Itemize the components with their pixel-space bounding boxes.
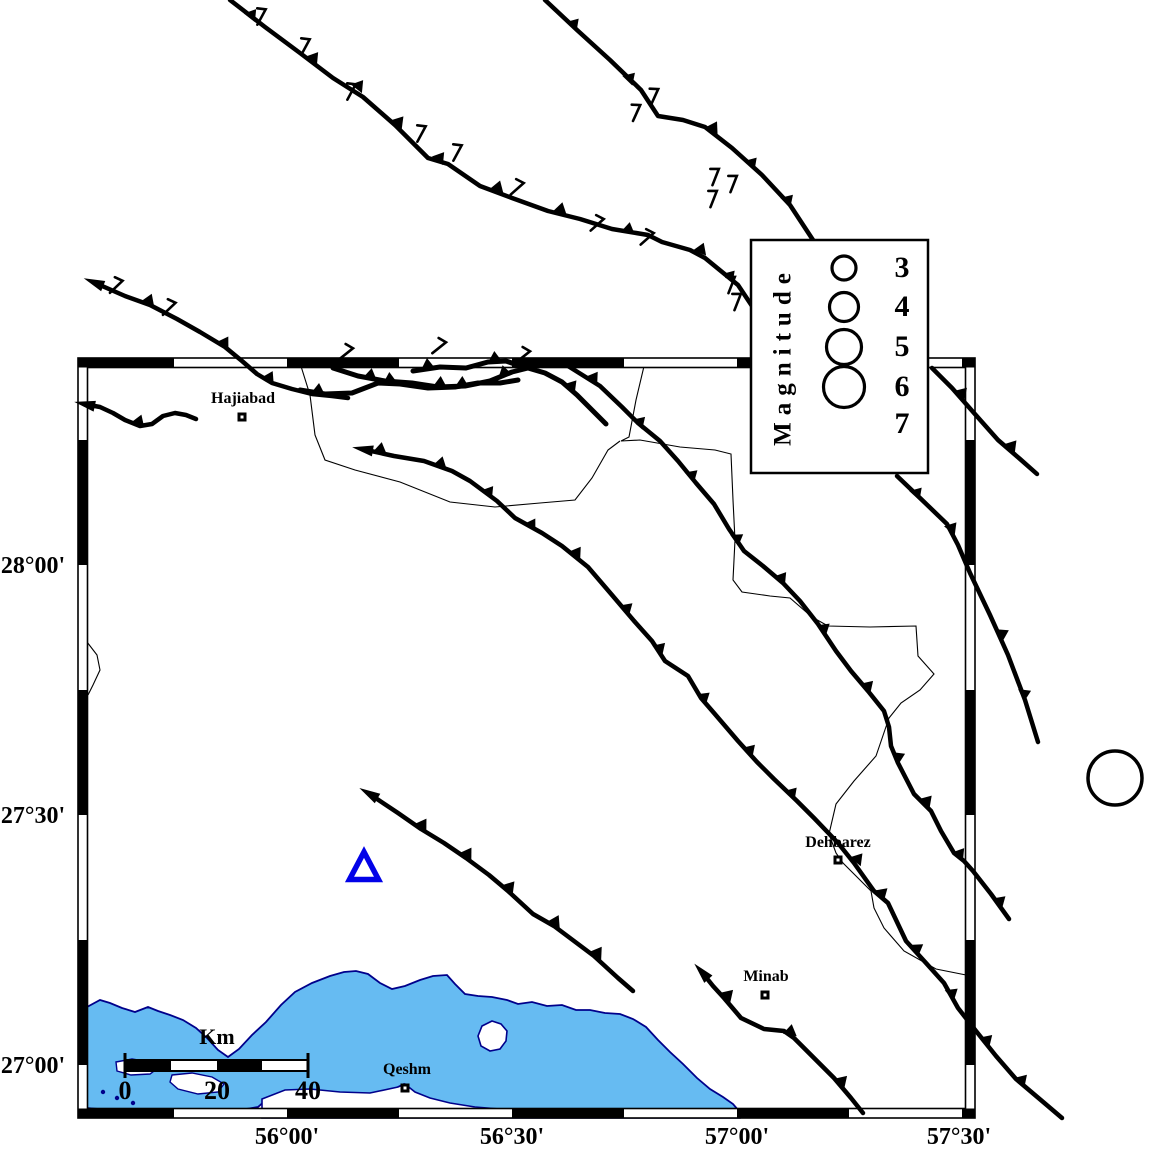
legend-title: Magnitude xyxy=(771,266,796,446)
latitude-label: 27°00' xyxy=(1,1054,65,1078)
city-label-hajiabad: Hajiabad xyxy=(211,391,275,407)
scalebar-black-segment xyxy=(217,1060,262,1071)
longitude-label: 57°30' xyxy=(927,1125,991,1149)
west-crossing-fault-end-arrowhead xyxy=(82,273,106,291)
north-fault-2-thrust-tooth xyxy=(566,14,584,32)
northeast-corner-fault-thrust-tooth xyxy=(1004,436,1022,453)
latitude-label: 28°00' xyxy=(1,554,65,578)
east-long-fault-thrust-tooth xyxy=(919,791,937,809)
northeast-corner-fault xyxy=(932,368,1037,474)
longitude-label: 57°00' xyxy=(705,1125,769,1149)
scalebar-distance-label: 0 xyxy=(119,1078,132,1104)
dehbarez-fault-end-arrowhead xyxy=(351,442,374,456)
station-triangle-marker xyxy=(350,852,379,880)
dehbarez-fault-thrust-tooth xyxy=(652,638,670,656)
strike-slip-arrow xyxy=(445,141,466,161)
east-long-fault-thrust-tooth xyxy=(774,568,792,585)
strike-slip-arrow xyxy=(429,336,448,353)
north-fault-2 xyxy=(545,0,813,240)
scalebar-distance-label: 40 xyxy=(295,1078,321,1104)
east-long-fault-thrust-tooth xyxy=(685,465,703,483)
east-long-fault-thrust-tooth xyxy=(860,676,878,694)
strike-slip-arrow xyxy=(409,122,430,142)
dehbarez-fault-thrust-tooth xyxy=(481,482,499,499)
north-fault-2-thrust-tooth xyxy=(744,153,762,171)
map-drawing xyxy=(0,0,1151,1152)
dehbarez-fault-thrust-tooth xyxy=(742,740,760,758)
dehbarez-fault-thrust-tooth xyxy=(979,1030,997,1048)
southwest-fault-thrust-tooth xyxy=(502,877,520,894)
city-marker-center xyxy=(837,859,840,862)
legend-magnitude-value: 4 xyxy=(895,292,910,322)
frame-tick-top xyxy=(78,358,174,368)
frame-tick-top xyxy=(287,358,399,368)
strike-slip-arrow xyxy=(507,177,526,194)
east-long-fault-thrust-tooth xyxy=(586,368,604,385)
legend-magnitude-circle-3 xyxy=(832,256,856,280)
river-left-edge-line xyxy=(87,642,100,695)
north-long-fault-east-tail-thrust-tooth xyxy=(909,483,927,501)
dehbarez-fault-thrust-tooth xyxy=(910,939,927,957)
minab-fault-thrust-tooth xyxy=(834,1071,852,1089)
strike-slip-arrow xyxy=(336,342,355,359)
dehbarez-fault-thrust-tooth xyxy=(1014,1070,1032,1088)
city-marker-center xyxy=(404,1087,407,1090)
west-crossing-fault xyxy=(93,282,348,398)
north-fault-2-thrust-tooth xyxy=(780,190,798,208)
frame-tick-top xyxy=(962,358,975,368)
frame-tick-left xyxy=(78,940,88,1065)
city-label-minab: Minab xyxy=(743,969,788,985)
north-long-fault-east-tail-thrust-tooth xyxy=(944,518,962,535)
latitude-label: 27°30' xyxy=(1,804,65,828)
north-fault-2-thrust-tooth xyxy=(622,68,640,86)
top-wavy-fault-b-thrust-tooth xyxy=(564,376,582,393)
longitude-label: 56°30' xyxy=(480,1125,544,1149)
frame-tick-bottom xyxy=(512,1109,624,1119)
city-label-dehbarez: Dehbarez xyxy=(805,835,870,851)
scalebar-km-label: Km xyxy=(199,1026,234,1048)
east-long-fault-thrust-tooth xyxy=(632,412,650,430)
dehbarez-fault-thrust-tooth xyxy=(569,543,587,560)
scalebar-endcap xyxy=(124,1053,127,1078)
scalebar-endcap xyxy=(307,1053,310,1078)
legend-magnitude-circle-6 xyxy=(824,367,865,408)
north-long-fault-west-thrust-tooth xyxy=(722,266,740,284)
frame-tick-bottom xyxy=(737,1109,849,1119)
north-long-fault-west xyxy=(230,0,752,306)
earthquake-event-circle xyxy=(1088,751,1142,805)
dehbarez-fault-thrust-tooth xyxy=(697,687,714,705)
frame-tick-bottom xyxy=(287,1109,399,1119)
frame-tick-left xyxy=(78,440,88,565)
east-long-fault-thrust-tooth xyxy=(993,891,1011,909)
frame-tick-left xyxy=(78,690,88,815)
west-crossing-fault-thrust-tooth xyxy=(217,333,235,350)
strike-slip-arrow xyxy=(701,187,722,208)
north-long-fault-east-tail-thrust-tooth xyxy=(996,624,1012,642)
frame-tick-right xyxy=(966,440,976,565)
frame-tick-bottom xyxy=(962,1109,975,1119)
legend-magnitude-circle-5 xyxy=(827,330,862,365)
frame-tick-right xyxy=(966,690,976,815)
strike-slip-arrow xyxy=(721,172,742,193)
legend-magnitude-circle-4 xyxy=(830,293,859,322)
frame-tick-bottom xyxy=(78,1109,174,1119)
frame-tick-right xyxy=(966,940,976,1065)
top-wavy-fault-a-thrust-tooth xyxy=(311,382,326,394)
city-label-qeshm: Qeshm xyxy=(383,1062,431,1078)
legend-magnitude-value: 5 xyxy=(895,332,910,362)
scalebar-black-segment xyxy=(125,1060,171,1071)
dehbarez-fault-thrust-tooth xyxy=(620,598,638,616)
dehbarez-fault-thrust-tooth xyxy=(784,783,802,801)
longitude-label: 56°00' xyxy=(255,1125,319,1149)
southwest-fault xyxy=(368,793,633,991)
strike-slip-arrow xyxy=(703,165,724,186)
legend-magnitude-value: 7 xyxy=(895,409,910,439)
city-marker-center xyxy=(764,994,767,997)
top-wavy-fault-c-thrust-tooth xyxy=(487,351,502,363)
north-long-fault-west-thrust-tooth xyxy=(306,48,324,65)
top-wavy-fault-b-thrust-tooth xyxy=(433,376,448,388)
tiny-islet-dot xyxy=(101,1090,105,1094)
scalebar-distance-label: 20 xyxy=(204,1078,230,1104)
legend-magnitude-value: 3 xyxy=(895,253,910,283)
city-marker-center xyxy=(241,416,244,419)
dehbarez-fault-thrust-tooth xyxy=(875,883,893,901)
legend-magnitude-value: 6 xyxy=(895,372,910,402)
seismotectonic-map: Magnitude Km 28°00'27°30'27°00'56°00'56°… xyxy=(0,0,1151,1152)
strike-slip-arrow xyxy=(624,101,645,121)
frame-inner-border xyxy=(88,368,966,1109)
round-island xyxy=(478,1021,507,1051)
